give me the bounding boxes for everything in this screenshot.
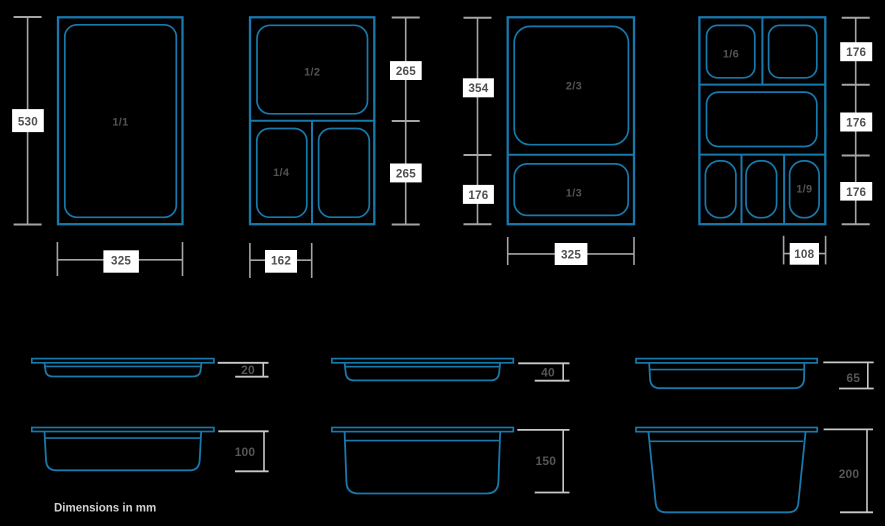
svg-text:20: 20 [241,363,255,377]
svg-text:354: 354 [468,82,488,95]
svg-text:200: 200 [839,467,860,481]
svg-text:150: 150 [535,454,556,468]
svg-text:176: 176 [468,189,488,202]
svg-text:1/9: 1/9 [796,183,812,195]
svg-text:176: 176 [846,186,866,199]
svg-text:1/3: 1/3 [566,188,582,200]
svg-text:265: 265 [396,65,416,78]
svg-text:40: 40 [541,365,555,379]
svg-text:65: 65 [846,371,860,385]
svg-text:Dimensions in mm: Dimensions in mm [54,503,156,515]
svg-text:1/1: 1/1 [112,117,128,129]
svg-text:325: 325 [561,248,581,261]
svg-text:108: 108 [794,248,814,261]
svg-text:176: 176 [846,116,866,129]
svg-text:2/3: 2/3 [566,80,582,92]
svg-text:1/4: 1/4 [273,167,290,179]
svg-text:530: 530 [18,116,38,129]
svg-text:265: 265 [396,167,416,180]
svg-text:325: 325 [111,254,131,267]
svg-text:100: 100 [235,445,256,459]
svg-text:162: 162 [271,254,291,267]
svg-text:1/6: 1/6 [723,49,739,61]
svg-text:1/2: 1/2 [304,67,320,79]
svg-text:176: 176 [846,46,866,59]
